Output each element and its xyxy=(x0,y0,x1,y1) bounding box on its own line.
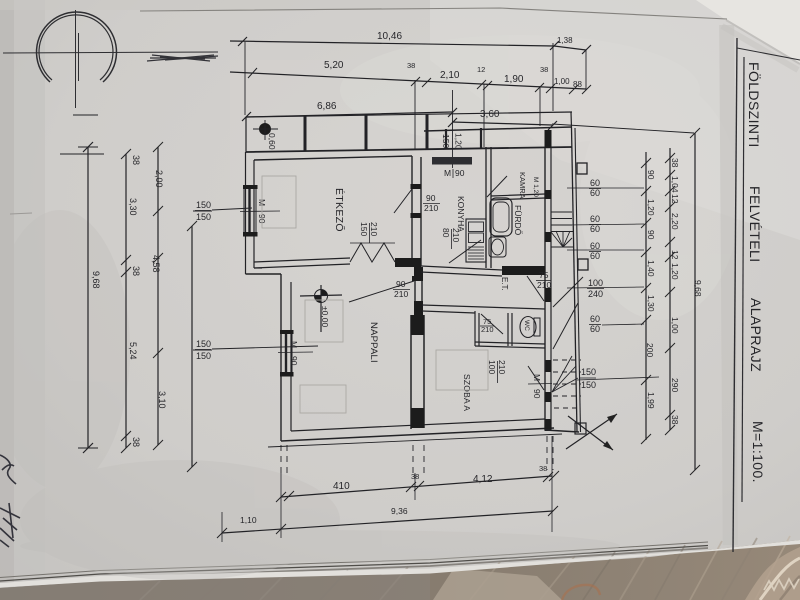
svg-text:38: 38 xyxy=(539,464,547,473)
svg-text:9,68: 9,68 xyxy=(91,271,101,289)
svg-text:90: 90 xyxy=(532,389,542,399)
svg-text:0,60: 0,60 xyxy=(267,133,277,150)
svg-text:60: 60 xyxy=(590,251,600,261)
svg-text:1,00: 1,00 xyxy=(670,317,680,334)
svg-text:M=1:100.: M=1:100. xyxy=(750,421,766,483)
svg-text:4,12: 4,12 xyxy=(473,474,493,485)
svg-text:1,20: 1,20 xyxy=(454,133,464,150)
svg-text:100: 100 xyxy=(588,278,603,288)
svg-text:150: 150 xyxy=(196,339,211,349)
svg-text:KAMRA: KAMRA xyxy=(518,172,527,199)
svg-text:M: M xyxy=(289,341,299,348)
svg-text:38: 38 xyxy=(670,415,680,425)
svg-text:1,04: 1,04 xyxy=(670,176,680,193)
svg-text:5,24: 5,24 xyxy=(128,342,138,360)
svg-text:1,10: 1,10 xyxy=(240,515,257,525)
svg-text:240: 240 xyxy=(588,289,603,299)
svg-text:38: 38 xyxy=(131,266,141,276)
svg-text:210: 210 xyxy=(424,203,438,213)
svg-text:2,00: 2,00 xyxy=(154,170,164,188)
svg-text:1,20: 1,20 xyxy=(646,199,656,216)
svg-text:90: 90 xyxy=(426,193,436,203)
svg-text:M: M xyxy=(444,168,451,178)
svg-text:150: 150 xyxy=(359,222,369,236)
svg-text:90: 90 xyxy=(455,168,465,178)
svg-text:200: 200 xyxy=(645,343,655,357)
svg-text:M: M xyxy=(532,374,542,381)
svg-text:6,86: 6,86 xyxy=(317,101,337,112)
svg-text:1,90: 1,90 xyxy=(504,74,524,85)
svg-text:60: 60 xyxy=(590,188,600,198)
svg-text:3,30: 3,30 xyxy=(128,198,138,216)
svg-text:12: 12 xyxy=(477,65,485,74)
svg-text:60: 60 xyxy=(590,324,600,334)
svg-text:38: 38 xyxy=(670,158,680,168)
svg-text:290: 290 xyxy=(670,378,680,392)
svg-text:150: 150 xyxy=(581,367,596,377)
svg-text:SZOBA A: SZOBA A xyxy=(462,374,472,411)
svg-text:38: 38 xyxy=(407,61,415,70)
svg-text:210: 210 xyxy=(451,228,461,242)
svg-text:1,20: 1,20 xyxy=(670,263,680,280)
svg-text:E.T.: E.T. xyxy=(500,277,509,291)
svg-text:90: 90 xyxy=(646,230,656,240)
svg-text:88: 88 xyxy=(573,80,582,89)
svg-text:2,10: 2,10 xyxy=(440,70,460,81)
svg-text:150: 150 xyxy=(196,212,211,222)
svg-text:60: 60 xyxy=(590,214,600,224)
svg-text:1,38: 1,38 xyxy=(557,36,573,45)
svg-text:M 1,20: M 1,20 xyxy=(532,177,539,197)
svg-text:FELVÉTELI: FELVÉTELI xyxy=(747,186,763,262)
svg-text:38: 38 xyxy=(131,437,141,447)
svg-text:90: 90 xyxy=(396,279,406,289)
svg-text:210: 210 xyxy=(497,360,507,374)
svg-text:4,58: 4,58 xyxy=(151,255,161,273)
svg-text:1,99: 1,99 xyxy=(646,392,656,409)
svg-text:9,68: 9,68 xyxy=(693,280,703,297)
svg-text:90: 90 xyxy=(646,170,656,180)
svg-text:KONYHA: KONYHA xyxy=(456,196,466,232)
svg-text:12: 12 xyxy=(670,194,680,204)
svg-text:9,36: 9,36 xyxy=(391,506,408,516)
svg-text:210: 210 xyxy=(537,280,551,290)
svg-text:150.: 150. xyxy=(441,134,451,151)
svg-text:60: 60 xyxy=(590,224,600,234)
svg-text:3,60: 3,60 xyxy=(480,109,500,120)
svg-text:10,46: 10,46 xyxy=(377,31,402,42)
svg-text:80: 80 xyxy=(441,228,451,238)
svg-text:38: 38 xyxy=(411,472,419,481)
svg-text:150: 150 xyxy=(581,380,596,390)
svg-text:1,30: 1,30 xyxy=(646,295,656,312)
svg-text:NAPPALI: NAPPALI xyxy=(368,322,379,363)
svg-text:60: 60 xyxy=(590,314,600,324)
svg-text:1,00: 1,00 xyxy=(554,77,570,86)
svg-text:60: 60 xyxy=(590,241,600,251)
svg-text:5,20: 5,20 xyxy=(324,60,344,71)
svg-text:38: 38 xyxy=(540,65,548,74)
svg-text:210: 210 xyxy=(394,289,408,299)
svg-text:210: 210 xyxy=(369,222,379,236)
svg-text:410: 410 xyxy=(333,481,350,492)
svg-text:3,10: 3,10 xyxy=(157,391,167,409)
svg-text:ALAPRAJZ: ALAPRAJZ xyxy=(748,298,764,372)
svg-text:90: 90 xyxy=(289,356,299,366)
svg-text:150: 150 xyxy=(196,351,211,361)
svg-text:WC: WC xyxy=(523,320,530,331)
svg-text:150: 150 xyxy=(196,200,211,210)
svg-text:FÜRDŐ: FÜRDŐ xyxy=(513,205,523,236)
svg-text:12: 12 xyxy=(670,250,680,260)
svg-text:±0,00: ±0,00 xyxy=(320,306,330,327)
svg-text:ÉTKEZŐ: ÉTKEZŐ xyxy=(333,188,347,232)
svg-text:38: 38 xyxy=(131,155,141,165)
svg-text:75: 75 xyxy=(539,270,549,280)
svg-text:2,20: 2,20 xyxy=(670,213,680,230)
svg-text:100: 100 xyxy=(487,360,497,374)
svg-text:FÖLDSZINTI: FÖLDSZINTI xyxy=(746,62,763,148)
svg-text:1,40: 1,40 xyxy=(646,260,656,277)
svg-text:60: 60 xyxy=(590,178,600,188)
